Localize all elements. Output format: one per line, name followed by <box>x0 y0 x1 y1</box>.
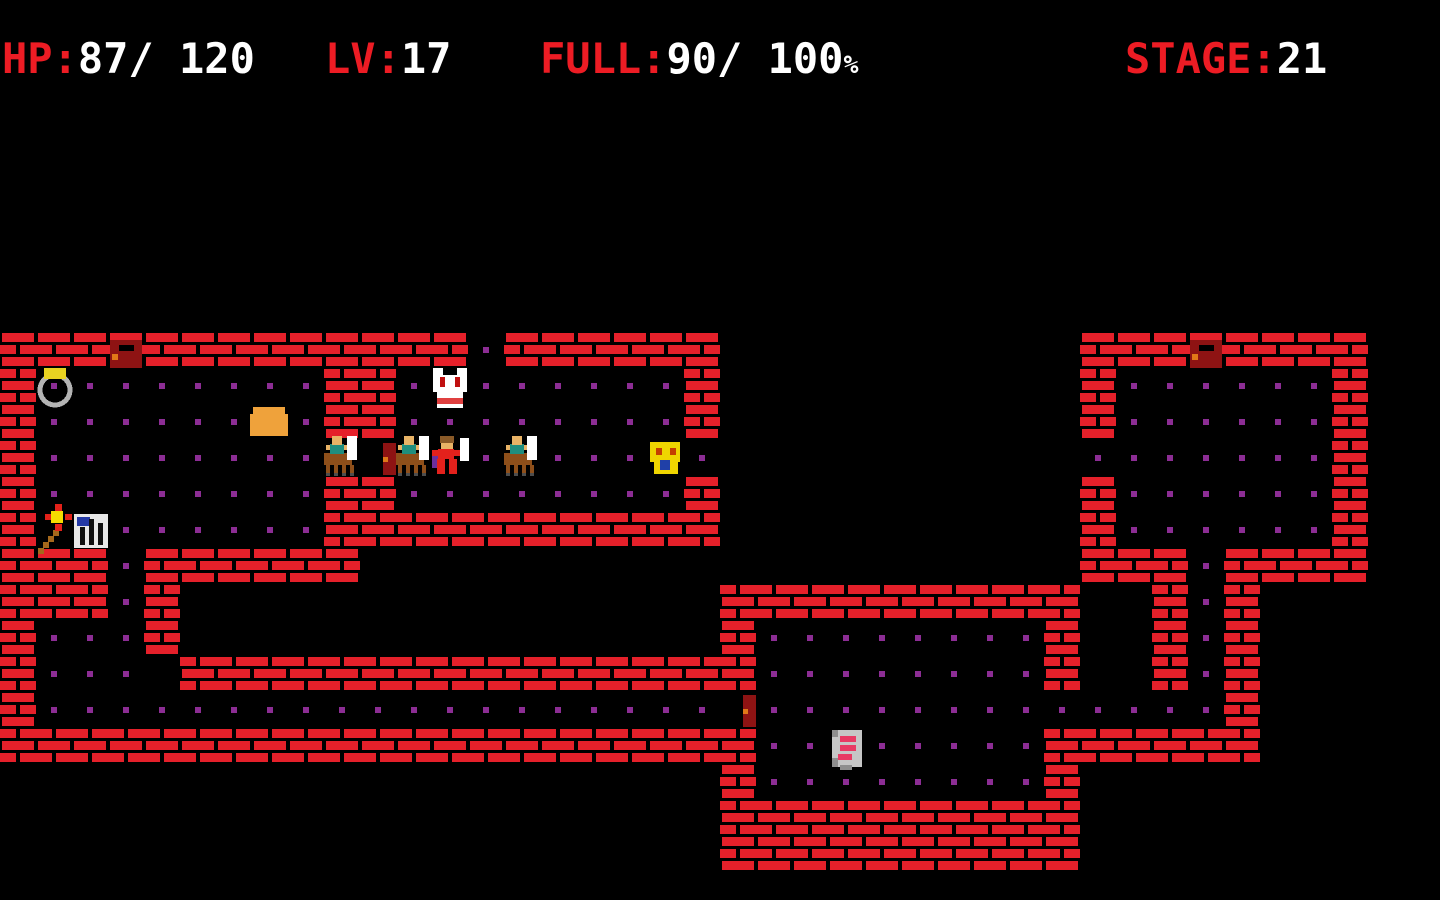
centaur-5 <box>324 436 357 476</box>
stage-label: STAGE: <box>1125 34 1277 83</box>
door-front-0 <box>110 340 142 368</box>
player-8 <box>432 436 469 474</box>
centaur-9 <box>504 436 537 476</box>
wall-layer <box>0 333 1368 870</box>
mask-3 <box>433 368 467 408</box>
full-unit: % <box>843 50 858 79</box>
centaur-7 <box>396 436 429 476</box>
scroll-14 <box>832 730 862 770</box>
hud-stage: STAGE:21 <box>1125 34 1327 83</box>
hp-value: 87/ 120 <box>78 34 255 83</box>
hp-label: HP: <box>2 34 78 83</box>
lv-label: LV: <box>325 34 401 83</box>
hud-full: FULL:90/ 100% <box>540 34 859 83</box>
bread-4 <box>250 407 288 436</box>
door-side-6 <box>383 443 396 475</box>
full-label: FULL: <box>540 34 666 83</box>
stage-value: 21 <box>1277 34 1328 83</box>
scared-face-10 <box>650 442 680 474</box>
dungeon-map[interactable] <box>0 332 1440 872</box>
cage-12 <box>74 514 108 548</box>
door-front-1 <box>1190 340 1222 368</box>
lv-value: 17 <box>401 34 452 83</box>
hud-hp: HP:87/ 120 <box>2 34 255 83</box>
door-side-13 <box>743 695 756 727</box>
game-screen[interactable]: HP:87/ 120 LV:17 FULL:90/ 100% STAGE:21 <box>0 0 1440 900</box>
full-value: 90/ 100 <box>666 34 843 83</box>
wand-11 <box>38 504 72 554</box>
hud-lv: LV:17 <box>325 34 451 83</box>
